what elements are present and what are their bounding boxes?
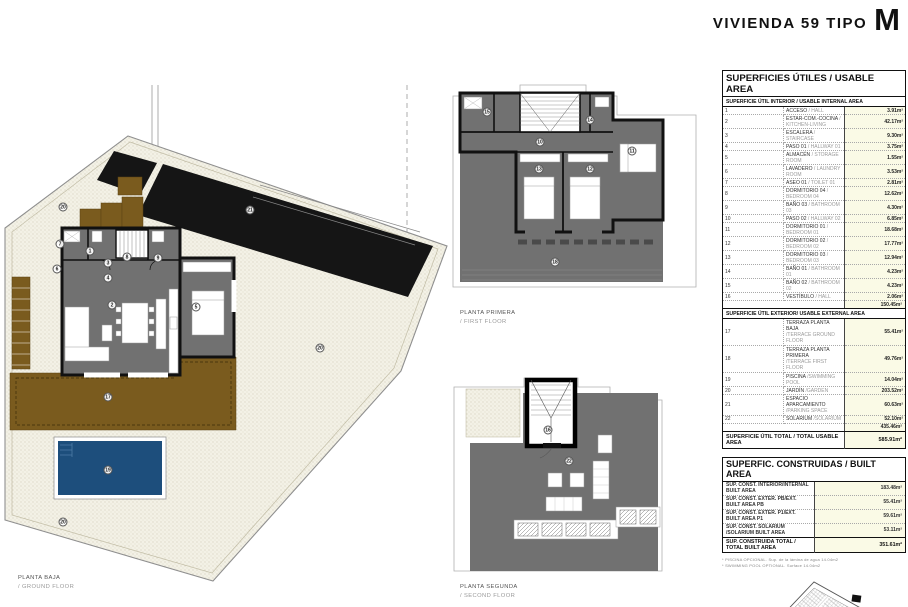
- usable-external-row: 17TERRAZA PLANTA BAJA/TERRACE GROUND FLO…: [723, 319, 906, 346]
- caption-es: PLANTA BAJA: [18, 574, 74, 583]
- usable-external-row: 20JARDÍN /GARDEN203.52m²: [723, 387, 906, 395]
- caption-en: / SECOND FLOOR: [460, 592, 518, 601]
- built-total-label: SUP. CONSTRUIDA TOTAL / TOTAL BUILT AREA: [723, 537, 815, 552]
- usable-internal-row: 15BAÑO 02 / BATHROOM 024.23m²: [723, 279, 906, 293]
- built-area-table: SUPERFIC. CONSTRUIDAS / BUILT AREA SUP. …: [722, 457, 906, 553]
- ground-floor-caption: PLANTA BAJA / GROUND FLOOR: [18, 574, 74, 592]
- usable-external-row: 22SOLARIUM /SOLARIUM52.10m²: [723, 415, 906, 423]
- usable-external-header: SUPERFICIE ÚTIL EXTERIOR/ USABLE EXTERNA…: [723, 309, 906, 319]
- usable-area-title: SUPERFICIES ÚTILES / USABLE AREA: [723, 71, 906, 97]
- built-total-value: 351.61m²: [814, 537, 906, 552]
- usable-internal-row: 5ALMACÉN / STORAGE ROOM1.55m²: [723, 151, 906, 165]
- usable-internal-row: 2ESTAR-COM.-COCINA / KITCHEN-LIVING42.17…: [723, 115, 906, 129]
- usable-total-value: 585.91m²: [845, 431, 906, 448]
- built-area-row: SUP. CONST. EXTER. PB/EXT. BUILT AREA PB…: [723, 495, 906, 509]
- usable-external-row: 18TERRAZA PLANTA PRIMERA/TERRACE FIRST F…: [723, 346, 906, 373]
- plan-sheet: VIVIENDA 59 TIPO M: [0, 0, 908, 607]
- usable-internal-row: 4PASO 01 / HALLWAY 013.75m²: [723, 143, 906, 151]
- usable-area-table: SUPERFICIES ÚTILES / USABLE AREA SUPERFI…: [722, 70, 906, 449]
- usable-external-row: 19PISCINA /SWIMMING POOL14.04m²: [723, 373, 906, 387]
- internal-subtotal-row: 150.45m²: [723, 301, 906, 309]
- built-area-row: SUP. CONST. INTERIOR/INTERNAL BUILT AREA…: [723, 481, 906, 495]
- highlighted-plot-59: [851, 594, 861, 602]
- usable-internal-row: 7ASEO 01 / TOILET 012.81m²: [723, 179, 906, 187]
- usable-internal-row: 16VESTÍBULO / HALL2.06m²: [723, 293, 906, 301]
- usable-internal-row: 11DORMITORIO 01 / BEDROOM 0118.68m²: [723, 223, 906, 237]
- sheet-title: VIVIENDA 59 TIPO M: [713, 8, 900, 32]
- usable-internal-row: 1ACCESO / HALL3.91m²: [723, 107, 906, 115]
- area-schedule-column: SUPERFICIES ÚTILES / USABLE AREA SUPERFI…: [722, 70, 906, 607]
- usable-internal-row: 13DORMITORIO 03 / BEDROOM 0312.94m²: [723, 251, 906, 265]
- built-area-row: SUP. CONST. EXTER. P1/EXT. BUILT AREA P1…: [723, 509, 906, 523]
- usable-internal-row: 8DORMITORIO 04 / BEDROOM 0412.62m²: [723, 187, 906, 201]
- built-area-row: SUP. CONST. SOLARIUM /SOLARIUM BUILT ARE…: [723, 523, 906, 537]
- usable-total-label: SUPERFICIE ÚTIL TOTAL / TOTAL USABLE ARE…: [723, 431, 845, 448]
- usable-internal-row: 14BAÑO 01 / BATHROOM 014.23m²: [723, 265, 906, 279]
- caption-es: PLANTA PRIMERA: [460, 309, 515, 318]
- ground-floor-plan-drawing: [0, 85, 455, 590]
- footnote-pool-en: * SWIMMING POOL OPTIONAL. Surface 14.04m…: [722, 563, 906, 569]
- usable-total-row: SUPERFICIE ÚTIL TOTAL / TOTAL USABLE ARE…: [723, 431, 906, 448]
- usable-internal-row: 9BAÑO 03 / BATHROOM 034.30m²: [723, 201, 906, 215]
- title-type-letter: M: [874, 8, 900, 32]
- caption-en: / GROUND FLOOR: [18, 583, 74, 592]
- caption-en: / FIRST FLOOR: [460, 318, 515, 327]
- internal-subtotal-value: 150.45m²: [845, 301, 906, 309]
- title-text: VIVIENDA 59 TIPO: [713, 15, 867, 32]
- external-subtotal-row: 435.46m²: [723, 423, 906, 431]
- usable-internal-row: 3ESCALERA / STAIRCASE9.30m²: [723, 129, 906, 143]
- site-location-map: [722, 576, 906, 607]
- first-floor-plan: 15141011131218: [450, 82, 700, 308]
- usable-internal-row: 10PASO 02 / HALLWAY 026.85m²: [723, 215, 906, 223]
- ground-floor-plan: 718936425211719202020: [0, 85, 455, 590]
- built-area-title: SUPERFIC. CONSTRUIDAS / BUILT AREA: [723, 457, 906, 481]
- first-floor-caption: PLANTA PRIMERA / FIRST FLOOR: [460, 309, 515, 327]
- usable-internal-header: SUPERFICIE ÚTIL INTERIOR / USABLE INTERN…: [723, 97, 906, 107]
- usable-internal-row: 12DORMITORIO 02 / BEDROOM 0217.77m²: [723, 237, 906, 251]
- caption-es: PLANTA SEGUNDA: [460, 583, 518, 592]
- usable-internal-row: 6LAVADERO / LAUNDRY ROOM3.53m²: [723, 165, 906, 179]
- second-floor-caption: PLANTA SEGUNDA / SECOND FLOOR: [460, 583, 518, 601]
- external-subtotal-value: 435.46m²: [845, 423, 906, 431]
- first-floor-plan-drawing: [450, 82, 700, 308]
- built-total-row: SUP. CONSTRUIDA TOTAL / TOTAL BUILT AREA…: [723, 537, 906, 552]
- second-floor-plan-drawing: [450, 373, 705, 581]
- footnotes: * PISCINA OPCIONAL. Sup. de la lámina de…: [722, 557, 906, 570]
- second-floor-plan: 1622: [450, 373, 705, 581]
- usable-external-row: 21ESPACIO APARCAMIENTO/PARKING SPACE60.6…: [723, 395, 906, 416]
